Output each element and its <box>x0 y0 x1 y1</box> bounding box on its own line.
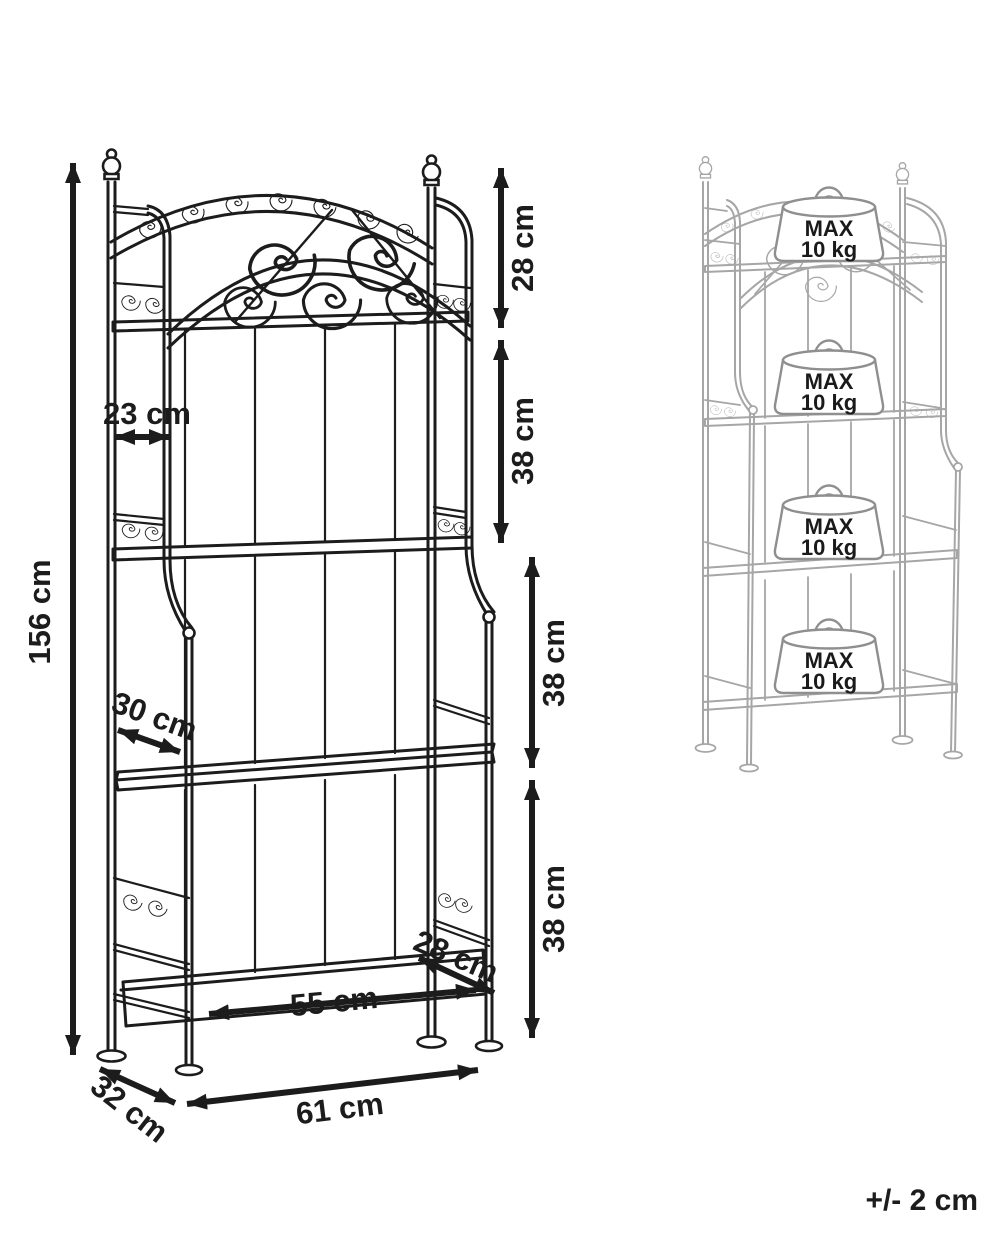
back-slats <box>185 323 395 978</box>
dimension-annotations: 156 cm 28 cm 38 cm 38 cm 38 cm 23 cm <box>22 163 571 1150</box>
dim-tier-gap-2: 38 cm <box>532 557 571 768</box>
main-dimension-view: 156 cm 28 cm 38 cm 38 cm 38 cm 23 cm <box>22 150 571 1150</box>
dim-tier-gap-3: 38 cm <box>532 780 571 1038</box>
top-tier-gap-label: 28 cm <box>505 204 540 292</box>
max-load-weight-icon: MAX 10 kg <box>775 188 883 263</box>
dim-base-depth: 32 cm <box>84 1068 175 1150</box>
front-upper-tubes <box>148 198 494 632</box>
top-shelf-depth-label: 23 cm <box>103 396 191 431</box>
dim-base-width: 61 cm <box>187 1070 478 1131</box>
tier-gap-2-label: 38 cm <box>536 619 571 707</box>
dim-tier-gap-1: 38 cm <box>501 340 540 543</box>
dim-middle-shelf-depth: 30 cm <box>107 685 202 752</box>
tier-gap-1-label: 38 cm <box>505 397 540 485</box>
ghost-side-rails <box>705 208 956 688</box>
middle-shelf-depth-label: 30 cm <box>107 685 202 748</box>
dim-top-shelf-depth: 23 cm <box>103 396 191 437</box>
diagram-page: 156 cm 28 cm 38 cm 38 cm 38 cm 23 cm <box>0 0 1000 1250</box>
max-load-weight-icon: MAX 10 kg <box>775 486 883 561</box>
load-capacity-view: MAX 10 kg MAX 10 kg MAX 10 kg MAX 10 kg <box>696 157 963 772</box>
tolerance-note: +/- 2 cm <box>865 1184 978 1217</box>
tier-gap-3-label: 38 cm <box>536 865 571 953</box>
max-load-weight-icon: MAX 10 kg <box>775 341 883 416</box>
max-load-text-line2: 10 kg <box>801 669 857 694</box>
dim-top-tier-gap: 28 cm <box>501 168 540 328</box>
front-panel-scrolls <box>225 210 440 329</box>
furniture-dimension-diagram: 156 cm 28 cm 38 cm 38 cm 38 cm 23 cm <box>0 0 1000 1250</box>
dim-height: 156 cm <box>22 163 73 1055</box>
max-load-text-line2: 10 kg <box>801 390 857 415</box>
max-load-text-line2: 10 kg <box>801 237 857 262</box>
leg-ball-right <box>484 612 495 623</box>
max-load-weight-icon: MAX 10 kg <box>775 620 883 695</box>
height-dimension-label: 156 cm <box>22 559 57 664</box>
max-load-text-line2: 10 kg <box>801 535 857 560</box>
leg-ball-left <box>184 628 195 639</box>
